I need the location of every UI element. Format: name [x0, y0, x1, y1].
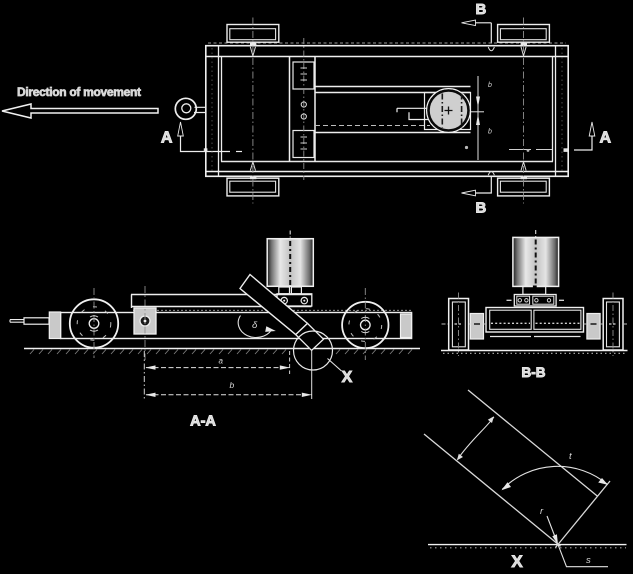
- svg-text:b: b: [488, 82, 492, 89]
- svg-text:a: a: [219, 357, 224, 366]
- svg-text:A: A: [600, 130, 612, 147]
- svg-text:B: B: [475, 200, 486, 217]
- svg-text:b: b: [230, 380, 235, 390]
- svg-text:A: A: [161, 130, 173, 147]
- svg-text:Direction of movement: Direction of movement: [17, 85, 141, 99]
- svg-text:X: X: [342, 369, 353, 386]
- svg-text:A-A: A-A: [190, 413, 216, 429]
- svg-text:δ: δ: [252, 320, 258, 331]
- svg-text:t: t: [569, 451, 572, 462]
- svg-text:B: B: [475, 1, 486, 18]
- svg-text:B-B: B-B: [522, 365, 546, 380]
- svg-text:b: b: [488, 129, 492, 136]
- svg-text:X: X: [511, 552, 523, 571]
- svg-text:s: s: [586, 555, 591, 566]
